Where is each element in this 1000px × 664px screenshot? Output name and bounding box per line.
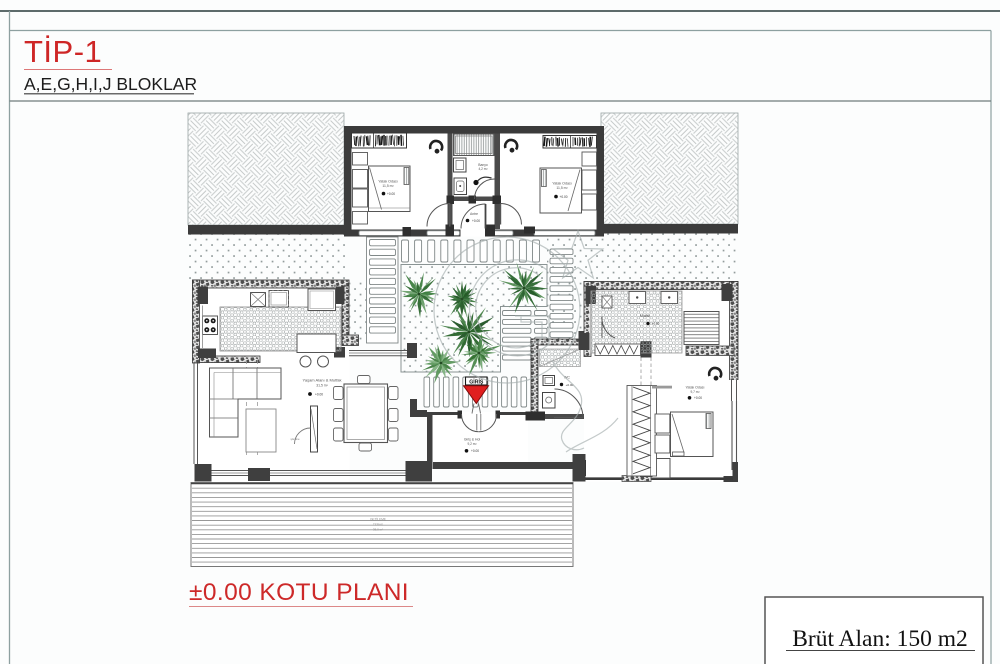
svg-text:9,2 m²: 9,2 m² [467, 442, 476, 446]
svg-text:Antre: Antre [470, 212, 478, 216]
svg-text:±0.00 KOTU PLANI: ±0.00 KOTU PLANI [189, 579, 409, 606]
svg-text:A,E,G,H,I,J BLOKLAR: A,E,G,H,I,J BLOKLAR [24, 74, 197, 94]
svg-text:+0.00: +0.00 [694, 396, 702, 400]
svg-text:TİP-1: TİP-1 [24, 34, 102, 69]
svg-text:Mutfak: Mutfak [640, 314, 650, 318]
svg-text:11,5 m²: 11,5 m² [382, 184, 394, 188]
svg-text:GEZİLEME: GEZİLEME [370, 517, 386, 522]
svg-text:+0.00: +0.00 [652, 322, 660, 326]
svg-text:Giriş & Hol: Giriş & Hol [464, 438, 480, 442]
svg-text:Yaşam Alanı & Mutfak: Yaşam Alanı & Mutfak [302, 378, 341, 383]
svg-text:+0.00: +0.00 [387, 192, 395, 196]
svg-text:+0.00: +0.00 [472, 219, 480, 223]
svg-text:31,5 m²: 31,5 m² [316, 384, 328, 388]
svg-text:35,0 m²: 35,0 m² [373, 528, 383, 532]
svg-text:+0.00: +0.00 [315, 392, 323, 396]
svg-text:TERAS: TERAS [373, 523, 383, 527]
svg-text:+0.00: +0.00 [559, 195, 567, 199]
svg-text:4,2 m²: 4,2 m² [478, 167, 487, 171]
svg-text:+0.00: +0.00 [471, 449, 479, 453]
svg-text:11,5 m²: 11,5 m² [556, 186, 568, 190]
svg-text:Yatak Odası: Yatak Odası [552, 182, 572, 186]
svg-text:Yatak Odası: Yatak Odası [378, 180, 398, 184]
svg-text:Brüt Alan: 150 m2: Brüt Alan: 150 m2 [792, 626, 968, 652]
svg-text:9,7 m²: 9,7 m² [690, 390, 699, 394]
svg-text:GİRİŞ: GİRİŞ [469, 379, 484, 386]
svg-text:şömine: şömine [290, 437, 299, 441]
